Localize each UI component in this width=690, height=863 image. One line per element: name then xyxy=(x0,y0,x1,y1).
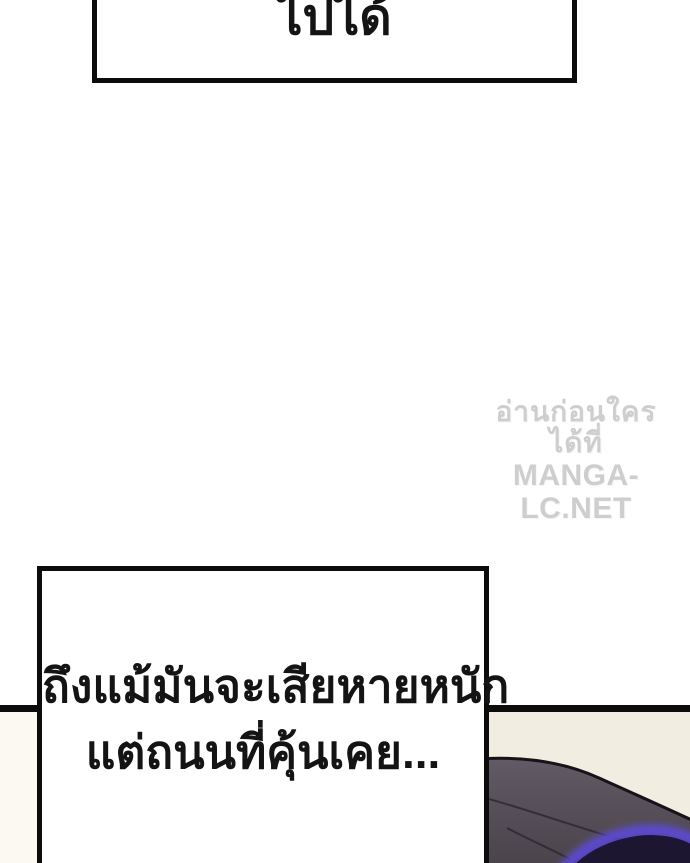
bottom-left-panel xyxy=(0,712,42,863)
speech-text-top: ไปได้ xyxy=(277,0,392,42)
speech-text-bottom: ถึงแม้มันจะเสียหายหนัก แต่ถนนที่คุ้นเคย.… xyxy=(42,653,484,785)
watermark-site-name: MANGA-LC.NET xyxy=(470,459,682,525)
hill-artwork xyxy=(484,712,690,863)
site-watermark: อ่านก่อนใครได้ที่ MANGA-LC.NET xyxy=(470,397,682,525)
watermark-thai-line: อ่านก่อนใครได้ที่ xyxy=(470,397,682,459)
speech-bubble-bottom: ถึงแม้มันจะเสียหายหนัก แต่ถนนที่คุ้นเคย.… xyxy=(37,566,489,863)
manga-page: ไปได้ ถึงแม้มันจะเสียหายหนัก แต่ถนนที่คุ… xyxy=(0,0,690,863)
speech-bubble-top: ไปได้ xyxy=(92,0,577,83)
speech-text-line2: แต่ถนนที่คุ้นเคย... xyxy=(42,719,484,785)
bottom-right-art-panel xyxy=(484,712,690,863)
speech-text-line1: ถึงแม้มันจะเสียหายหนัก xyxy=(42,653,484,719)
